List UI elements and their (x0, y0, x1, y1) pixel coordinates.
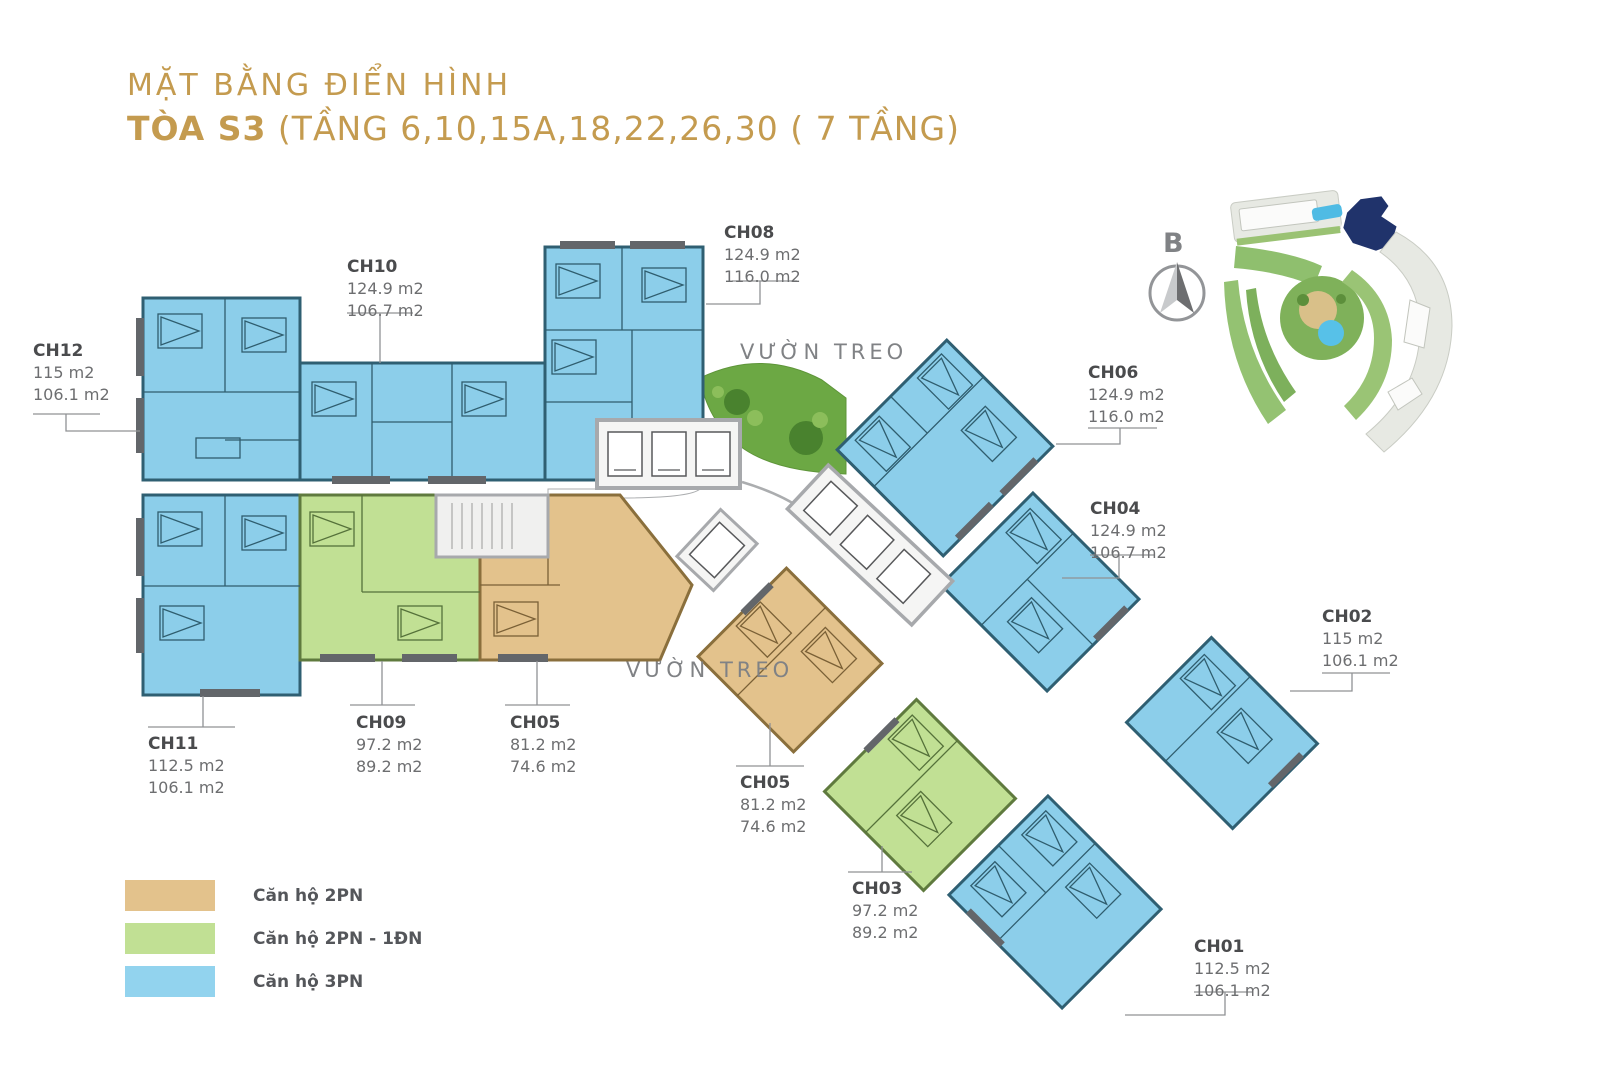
floorplan-page: MẶT BẰNG ĐIỂN HÌNH TÒA S3 (TẦNG 6,10,15A… (0, 0, 1600, 1078)
unit-shape-ch11 (143, 495, 300, 695)
floors-list: (TẦNG 6,10,15A,18,22,26,30 ( 7 TẦNG) (266, 109, 960, 148)
tower-name: TÒA S3 (127, 109, 266, 148)
unit-label-ch04: CH04124.9 m2106.7 m2 (1090, 498, 1167, 563)
legend-label-2pn1dn: Căn hộ 2PN - 1ĐN (253, 929, 422, 949)
legend-swatch-2pn (125, 880, 215, 911)
legend-swatch-3pn (125, 966, 215, 997)
unit-label-ch05b: CH0581.2 m274.6 m2 (740, 772, 806, 837)
legend-item-3pn: Căn hộ 3PN (125, 966, 422, 997)
site-map (1224, 190, 1452, 452)
unit-label-ch05a: CH0581.2 m274.6 m2 (510, 712, 576, 777)
page-title-line2: TÒA S3 (TẦNG 6,10,15A,18,22,26,30 ( 7 TẦ… (127, 109, 960, 148)
unit-label-ch02: CH02115 m2106.1 m2 (1322, 606, 1399, 671)
unit-label-ch01: CH01112.5 m2106.1 m2 (1194, 936, 1271, 1001)
unit-label-ch06: CH06124.9 m2116.0 m2 (1088, 362, 1165, 427)
page-title: MẶT BẰNG ĐIỂN HÌNH TÒA S3 (TẦNG 6,10,15A… (127, 68, 960, 148)
garden-label-bottom: VƯỜN TREO (626, 658, 793, 682)
compass-icon (1150, 262, 1204, 320)
legend-item-2pn: Căn hộ 2PN (125, 880, 422, 911)
unit-label-ch08: CH08124.9 m2116.0 m2 (724, 222, 801, 287)
compass-north-label: B (1163, 228, 1184, 259)
unit-label-ch03: CH0397.2 m289.2 m2 (852, 878, 918, 943)
unit-label-ch10: CH10124.9 m2106.7 m2 (347, 256, 424, 321)
unit-label-ch12: CH12115 m2106.1 m2 (33, 340, 110, 405)
legend-item-2pn1dn: Căn hộ 2PN - 1ĐN (125, 923, 422, 954)
legend-label-3pn: Căn hộ 3PN (253, 972, 363, 992)
garden-label-top: VƯỜN TREO (740, 340, 907, 364)
unit-shape-ch12 (143, 298, 300, 480)
page-title-line1: MẶT BẰNG ĐIỂN HÌNH (127, 68, 960, 103)
unit-label-ch09: CH0997.2 m289.2 m2 (356, 712, 422, 777)
stair-core (436, 495, 548, 557)
legend: Căn hộ 2PN Căn hộ 2PN - 1ĐN Căn hộ 3PN (125, 880, 422, 1009)
legend-label-2pn: Căn hộ 2PN (253, 886, 363, 906)
elevator-core-top (597, 420, 740, 488)
elevator-single (677, 510, 757, 591)
unit-label-ch11: CH11112.5 m2106.1 m2 (148, 733, 225, 798)
legend-swatch-2pn1dn (125, 923, 215, 954)
